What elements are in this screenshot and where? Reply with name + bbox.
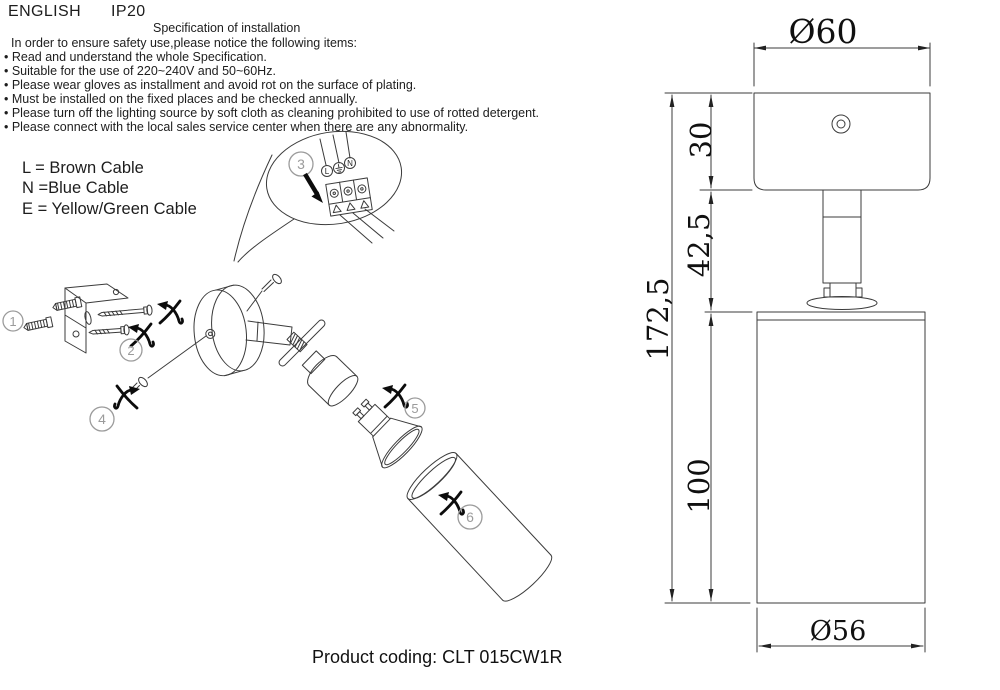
terminal-block — [326, 178, 372, 216]
part-number: 1 — [9, 314, 16, 329]
adjust-arm — [246, 321, 292, 345]
part-circle-6: 6 — [458, 505, 482, 529]
part-number: 4 — [98, 411, 106, 427]
part-number: 6 — [466, 509, 474, 525]
product-coding: Product coding: CLT 015CW1R — [312, 647, 562, 668]
part-circle-4: 4 — [90, 407, 114, 431]
mounting-screw — [89, 325, 130, 338]
part-circle-5: 5 — [405, 398, 425, 418]
rotate-screw-icon — [157, 301, 183, 323]
gu10-bulb — [340, 386, 427, 472]
rotate-screw-icon — [114, 386, 140, 408]
dim-canopy-height: 30 — [684, 122, 718, 159]
mounting-bracket — [65, 284, 128, 353]
stem-outline — [807, 190, 877, 310]
wall-anchor — [52, 297, 82, 313]
canopy-screw — [247, 273, 283, 311]
part-number: 2 — [127, 343, 134, 358]
dim-body-diameter: Ø56 — [810, 616, 867, 647]
part-circle-1: 1 — [3, 311, 23, 331]
ceiling-canopy — [190, 282, 269, 378]
body-outline — [757, 312, 925, 603]
canopy-outline — [754, 93, 930, 190]
dim-canopy-diameter: Ø60 — [788, 12, 857, 51]
mounting-screw — [98, 305, 153, 320]
diagram-canvas: 1 — [0, 0, 1000, 690]
installation-sheet: ENGLISHIP20 Specification of installatio… — [0, 0, 1000, 690]
part-circle-2: 2 — [120, 339, 142, 361]
terminal-label-n: N — [347, 159, 353, 168]
part-number: 5 — [411, 401, 418, 416]
balloon-tail — [234, 155, 272, 261]
wall-anchor — [23, 317, 53, 333]
rotate-screw-icon — [382, 385, 408, 407]
dim-stem-height: 42,5 — [682, 213, 716, 278]
side-view: Ø60 30 42,5 100 172,5 Ø56 — [641, 12, 930, 652]
wiring-detail-balloon: 3 L N — [234, 122, 408, 262]
part-number: 3 — [297, 156, 305, 172]
balloon-tail — [238, 219, 294, 262]
shade-tube — [402, 447, 557, 607]
terminal-label-l: L — [325, 167, 330, 176]
threaded-stud — [287, 332, 307, 352]
dim-body-height: 100 — [682, 458, 716, 513]
lamp-holder — [295, 344, 362, 410]
leader-line — [148, 336, 206, 378]
dim-total-height: 172,5 — [641, 277, 675, 360]
